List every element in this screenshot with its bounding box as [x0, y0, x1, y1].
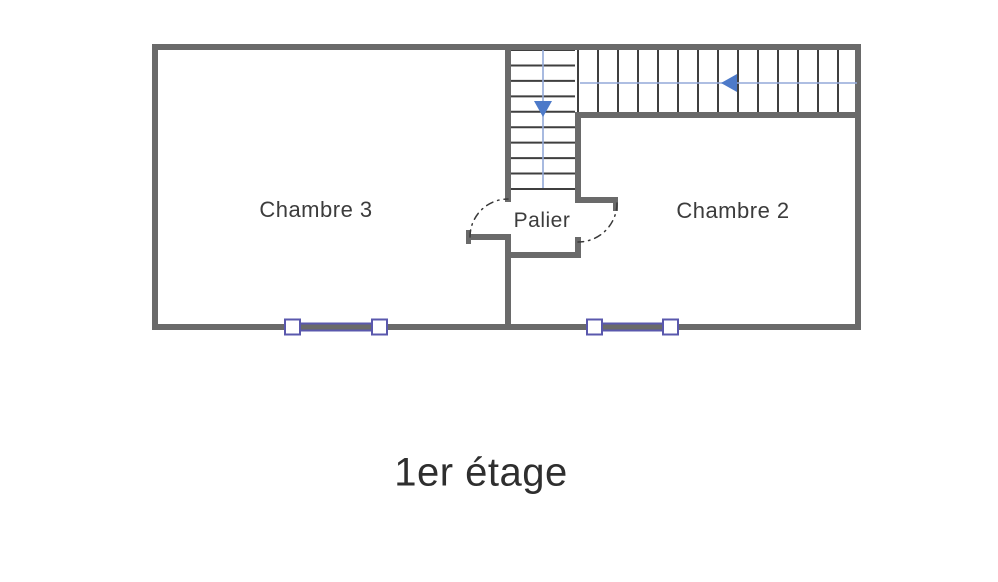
door-arc-chambre3 [470, 199, 508, 237]
wall-palier-right-stub [575, 197, 618, 203]
stair-arrow-down-icon [534, 101, 552, 117]
wall-stair-run-bottom [575, 112, 861, 118]
stair-arrow-left-icon [721, 74, 737, 92]
wall-stairwell-left [505, 44, 511, 202]
wall-outer-right [855, 44, 861, 330]
room-label-chambre2: Chambre 2 [676, 198, 789, 224]
wall-outer-left [152, 44, 158, 330]
wall-palier-bottom [505, 252, 581, 258]
wall-palier-left-stub [468, 234, 508, 240]
room-label-palier: Palier [514, 209, 571, 233]
window-chambre3-jamb [285, 320, 300, 335]
window-chambre2-jamb [587, 320, 602, 335]
wall-chambre2-left-upper [575, 112, 581, 202]
floor-title: 1er étage [394, 451, 568, 496]
window-chambre2-jamb [663, 320, 678, 335]
wall-room-divider [505, 234, 511, 330]
window-chambre3-jamb [372, 320, 387, 335]
floorplan-page: Chambre 3 Chambre 2 Palier 1er étage [0, 0, 998, 582]
door-arc-chambre2 [578, 203, 617, 242]
room-label-chambre3: Chambre 3 [259, 197, 372, 223]
